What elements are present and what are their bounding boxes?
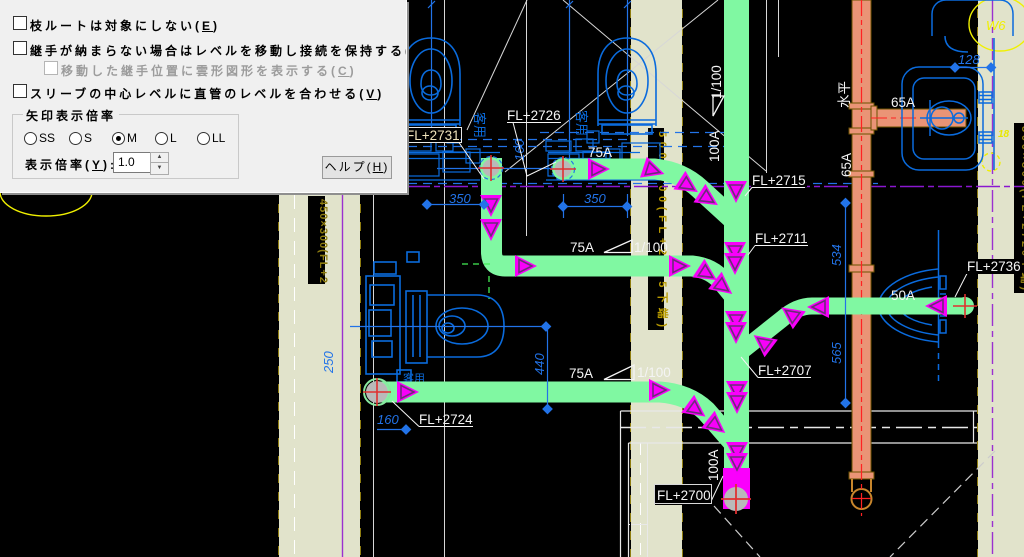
svg-text:水平: 水平 <box>837 81 852 108</box>
svg-text:75A: 75A <box>569 366 593 381</box>
svg-text:50A: 50A <box>891 288 915 303</box>
svg-text:350: 350 <box>449 191 471 206</box>
svg-text:FL+2700: FL+2700 <box>657 488 711 503</box>
svg-text:160: 160 <box>377 412 399 427</box>
svg-text:1/100: 1/100 <box>637 365 671 380</box>
svg-text:100A: 100A <box>707 130 722 162</box>
svg-text:18: 18 <box>998 129 1010 140</box>
svg-text:FL+2736: FL+2736 <box>967 259 1021 274</box>
svg-text:65A: 65A <box>839 153 854 177</box>
svg-text:W6: W6 <box>986 18 1006 33</box>
svg-text:FL+2711: FL+2711 <box>755 231 808 246</box>
svg-text:FL+2715: FL+2715 <box>752 173 806 188</box>
svg-text:75A: 75A <box>570 240 594 255</box>
svg-text:160: 160 <box>512 139 527 161</box>
svg-text:75A: 75A <box>588 145 612 160</box>
svg-text:350: 350 <box>584 191 606 206</box>
svg-text:250: 250 <box>321 351 336 374</box>
svg-text:65A: 65A <box>891 95 915 110</box>
svg-text:565: 565 <box>829 342 844 364</box>
svg-text:1/100: 1/100 <box>634 240 668 255</box>
svg-text:440: 440 <box>532 353 547 375</box>
svg-text:534: 534 <box>829 244 844 266</box>
svg-text:FL+2724: FL+2724 <box>419 412 473 427</box>
svg-text:FL+2731: FL+2731 <box>406 128 460 143</box>
svg-text:FL+2726: FL+2726 <box>507 108 561 123</box>
svg-text:450×300(FL+2: 450×300(FL+2 <box>317 199 329 283</box>
svg-text:128: 128 <box>958 52 980 67</box>
svg-text:100A: 100A <box>706 449 721 481</box>
svg-text:FL+2707: FL+2707 <box>758 363 812 378</box>
svg-text:客用: 客用 <box>574 110 589 136</box>
svg-text:客用: 客用 <box>472 112 487 138</box>
svg-text:1/100: 1/100 <box>709 65 724 99</box>
